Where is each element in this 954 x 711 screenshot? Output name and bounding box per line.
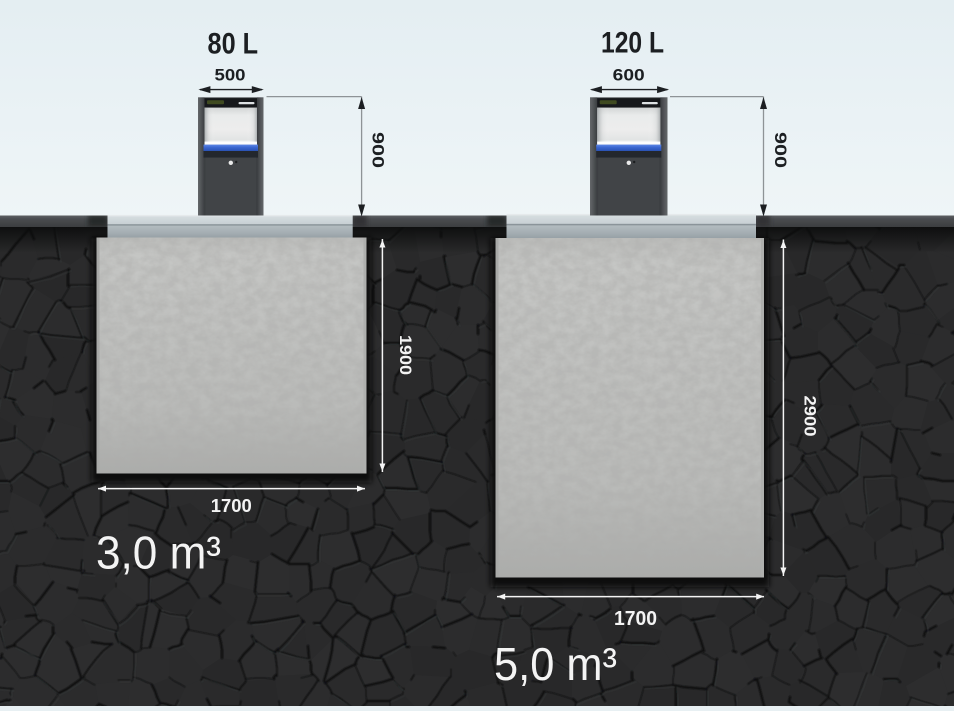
svg-text:3,0 m³: 3,0 m³ xyxy=(96,527,221,579)
svg-text:80 L: 80 L xyxy=(208,28,259,61)
svg-text:500: 500 xyxy=(215,67,246,85)
svg-text:900: 900 xyxy=(771,132,789,168)
svg-text:1700: 1700 xyxy=(614,608,657,630)
svg-text:120 L: 120 L xyxy=(601,27,664,60)
svg-text:900: 900 xyxy=(369,132,387,168)
svg-text:5,0 m³: 5,0 m³ xyxy=(494,638,617,690)
svg-text:1900: 1900 xyxy=(396,335,415,375)
svg-text:600: 600 xyxy=(613,67,645,85)
svg-text:2900: 2900 xyxy=(801,396,820,437)
svg-text:1700: 1700 xyxy=(211,495,252,516)
